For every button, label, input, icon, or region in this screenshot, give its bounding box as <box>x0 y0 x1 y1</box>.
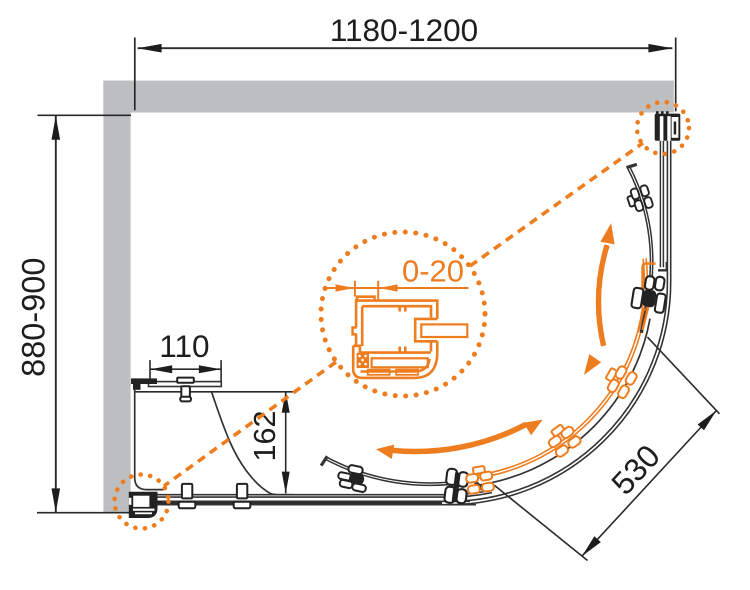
svg-text:162: 162 <box>248 411 282 462</box>
svg-text:1180-1200: 1180-1200 <box>330 12 478 48</box>
svg-text:530: 530 <box>604 438 667 502</box>
svg-text:0-20: 0-20 <box>402 254 464 289</box>
svg-text:110: 110 <box>159 328 209 364</box>
svg-text:880-900: 880-900 <box>16 258 52 377</box>
